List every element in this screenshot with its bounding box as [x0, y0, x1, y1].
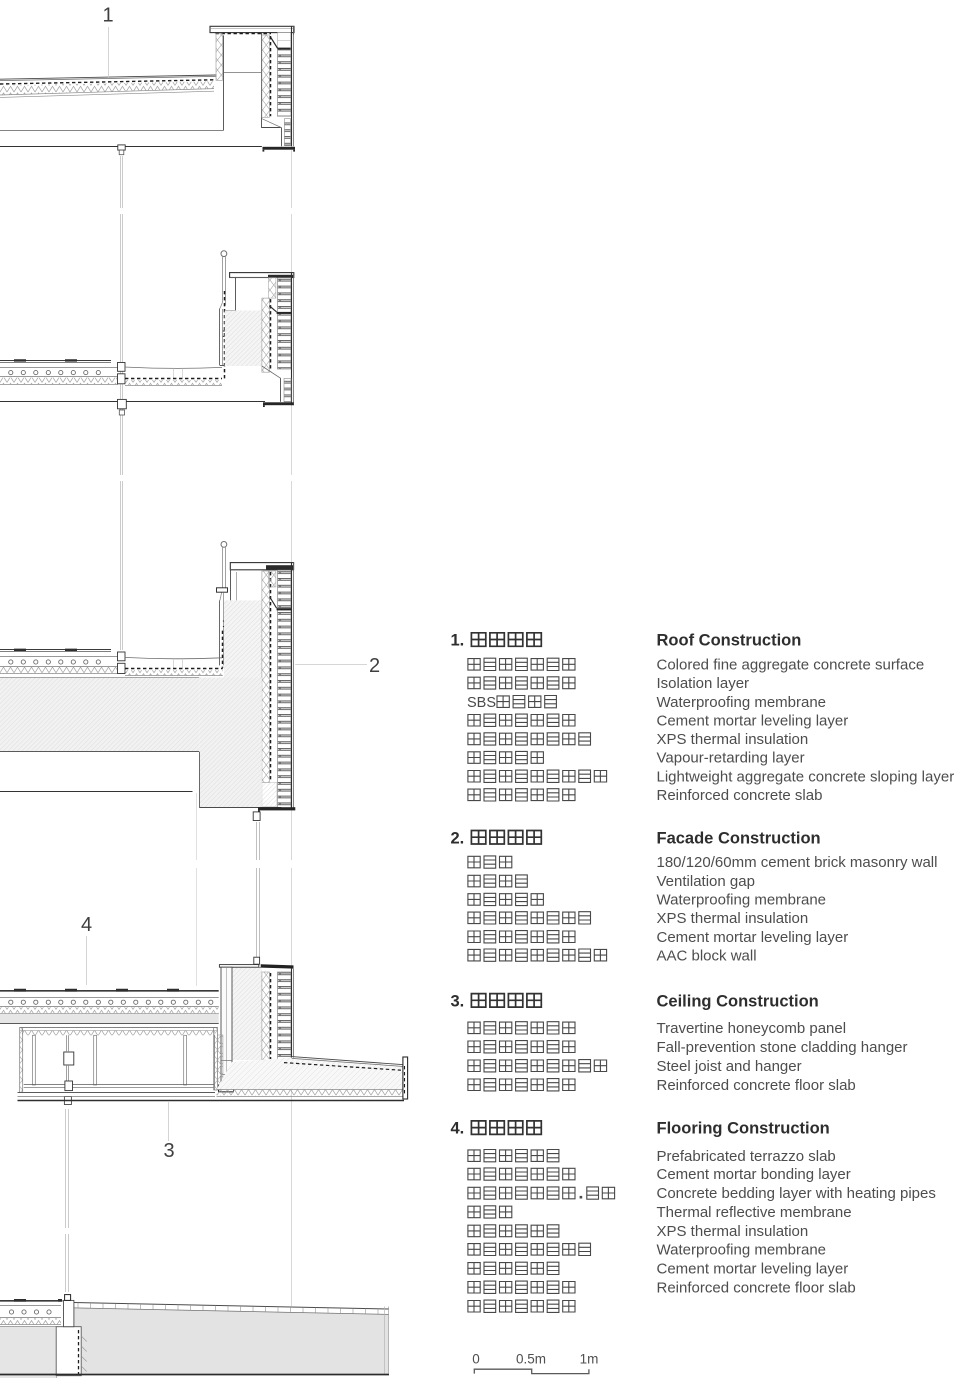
svg-text:Colored fine aggregate concret: Colored fine aggregate concrete surface	[657, 657, 925, 674]
svg-text:AAC block wall: AAC block wall	[657, 947, 757, 964]
svg-text:1: 1	[102, 5, 113, 27]
svg-text:4.: 4.	[451, 1120, 465, 1138]
svg-text:Fall-prevention stone cladding: Fall-prevention stone cladding hanger	[657, 1039, 908, 1056]
svg-text:Facade Construction: Facade Construction	[657, 829, 821, 847]
svg-text:Ceiling Construction: Ceiling Construction	[657, 992, 819, 1010]
svg-text:XPS thermal insulation: XPS thermal insulation	[657, 910, 809, 927]
svg-text:Cement mortar leveling layer: Cement mortar leveling layer	[657, 929, 849, 946]
svg-text:1.: 1.	[451, 632, 465, 650]
svg-text:Prefabricated terrazzo slab: Prefabricated terrazzo slab	[657, 1148, 836, 1165]
svg-text:Travertine honeycomb panel: Travertine honeycomb panel	[657, 1020, 847, 1037]
svg-text:180/120/60mm cement brick maso: 180/120/60mm cement brick masonry wall	[657, 854, 938, 871]
svg-text:0.5m: 0.5m	[516, 1352, 546, 1367]
svg-text:1m: 1m	[580, 1352, 599, 1367]
svg-text:3: 3	[163, 1140, 174, 1162]
svg-text:Waterproofing membrane: Waterproofing membrane	[657, 892, 827, 909]
svg-text:Lightweight aggregate concrete: Lightweight aggregate concrete sloping l…	[657, 768, 955, 785]
svg-text:Reinforced concrete slab: Reinforced concrete slab	[657, 787, 823, 804]
svg-text:Cement mortar leveling layer: Cement mortar leveling layer	[657, 1261, 849, 1278]
svg-text:Flooring Construction: Flooring Construction	[657, 1120, 830, 1138]
svg-text:XPS thermal insulation: XPS thermal insulation	[657, 1223, 809, 1240]
svg-text:Reinforced concrete floor slab: Reinforced concrete floor slab	[657, 1077, 856, 1094]
svg-text:Thermal reflective membrane: Thermal reflective membrane	[657, 1204, 852, 1221]
svg-text:Waterproofing membrane: Waterproofing membrane	[657, 694, 827, 711]
svg-text:0: 0	[472, 1352, 480, 1367]
svg-text:4: 4	[81, 914, 92, 936]
svg-text:Vapour-retarding layer: Vapour-retarding layer	[657, 750, 805, 767]
svg-text:Reinforced concrete floor slab: Reinforced concrete floor slab	[657, 1279, 856, 1296]
svg-text:Cement mortar leveling layer: Cement mortar leveling layer	[657, 712, 849, 729]
svg-text:Isolation layer: Isolation layer	[657, 675, 750, 692]
svg-text:Steel joist and hanger: Steel joist and hanger	[657, 1058, 802, 1075]
svg-text:SBS: SBS	[467, 695, 496, 711]
svg-text:3.: 3.	[451, 992, 465, 1010]
svg-text:XPS thermal insulation: XPS thermal insulation	[657, 731, 809, 748]
svg-text:Waterproofing membrane: Waterproofing membrane	[657, 1242, 827, 1259]
svg-text:Concrete bedding layer with he: Concrete bedding layer with heating pipe…	[657, 1185, 936, 1202]
svg-text:Ventilation gap: Ventilation gap	[657, 873, 755, 890]
svg-text:Roof Construction: Roof Construction	[657, 632, 802, 650]
svg-text:2.: 2.	[451, 829, 465, 847]
svg-text:2: 2	[369, 655, 380, 677]
svg-text:Cement mortar bonding layer: Cement mortar bonding layer	[657, 1166, 851, 1183]
